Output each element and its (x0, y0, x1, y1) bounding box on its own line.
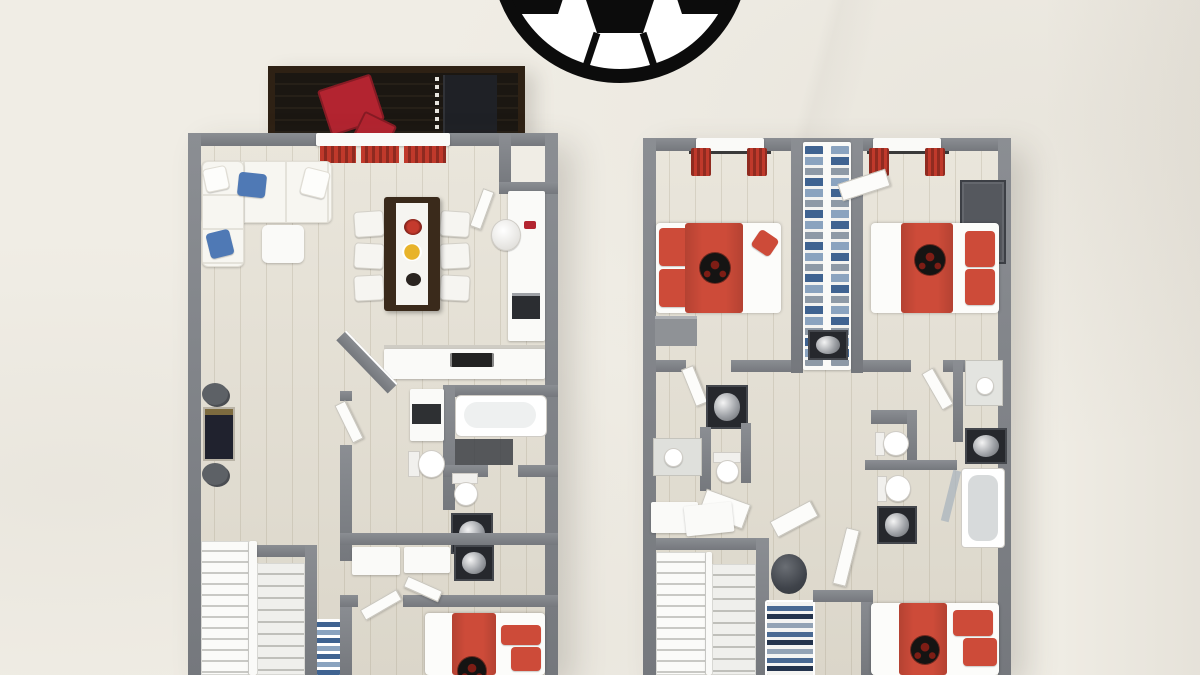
oven (512, 293, 540, 319)
washing-machine-2 (454, 545, 494, 581)
dark-plate (406, 273, 421, 286)
bath-door-leaf (681, 365, 708, 407)
bed-first-floor (425, 613, 545, 675)
kitchen-red-item (524, 221, 536, 229)
shower-interior (968, 475, 998, 541)
closet-shelves-clothes (317, 619, 340, 675)
floor-plan-scene (0, 0, 1200, 675)
right-bath-wall-h (865, 460, 957, 470)
sink-bowl (976, 377, 994, 395)
shower-enclosure (961, 468, 1005, 548)
toiletA-bowl (883, 431, 909, 456)
bathroom-door-leaf (334, 400, 363, 443)
bed-top-right (871, 223, 999, 313)
sink-bowl (664, 448, 683, 467)
dining-chair (353, 274, 384, 302)
red-curtain (691, 148, 711, 176)
stair-flight-left (656, 552, 706, 675)
bed-red-pillow-2 (511, 647, 541, 671)
stair-stringer (249, 541, 257, 675)
cabinet-2 (404, 547, 450, 573)
stair-flight-right (257, 563, 305, 675)
toiletB-bowl (885, 475, 911, 502)
dining-chair (353, 210, 385, 238)
dining-table (384, 197, 440, 311)
lower-wall-h (340, 533, 558, 545)
kitchen-sink-bowl (491, 219, 521, 251)
right-bath-wall-v (953, 360, 963, 442)
red-door-mat (404, 146, 446, 163)
balcony-door-frame (316, 133, 450, 146)
nightstand-gray (655, 316, 697, 346)
stair-flight-right (712, 564, 756, 675)
toilet-bowl (716, 460, 739, 483)
floor-plan-second (643, 138, 1011, 675)
sink-counter-right (965, 360, 1003, 406)
stair-wall-right (305, 545, 317, 675)
dining-chair (439, 274, 470, 302)
bean-bag (771, 554, 807, 594)
bath-wall-bottom-b (518, 465, 558, 477)
left-bath-wall-v2 (741, 423, 751, 483)
entry-notch-wall-v (499, 133, 511, 188)
arcade-game-table (203, 407, 235, 461)
closet-wall (340, 603, 352, 675)
bath-door-leaf-2 (921, 368, 953, 411)
bottom-bedroom-wall-h (813, 590, 873, 602)
bed-pillow-red-2 (965, 269, 995, 305)
landing-door-leaf-2 (832, 527, 860, 587)
stair-wall-top (656, 538, 761, 550)
washer-dryer-tower (410, 389, 444, 441)
toilet-bowl (418, 450, 445, 478)
soccer-ball-motif (915, 245, 945, 275)
balcony-storage-unit (443, 75, 497, 135)
hall-wall-stub (340, 391, 352, 401)
game-stool (202, 383, 228, 405)
sofa-pillow-white (202, 165, 230, 193)
soccer-ball-motif (911, 636, 939, 664)
entry-door-leaf (470, 188, 495, 230)
bed-pillow-red-2 (963, 638, 997, 666)
yellow-plate (402, 243, 422, 261)
red-door-mat (361, 146, 399, 163)
red-curtain (925, 148, 945, 176)
closet-lower-washer (808, 330, 848, 360)
bed-red-pillow (501, 625, 541, 645)
ottoman (262, 225, 304, 263)
wall-left (643, 138, 656, 675)
dryer-door (412, 404, 441, 424)
balcony-door-track (435, 77, 439, 133)
bedroom-wall-a (340, 595, 358, 607)
washerA-right-bath (965, 428, 1007, 464)
washerB-right-bath (877, 506, 917, 544)
sink-counter (653, 438, 702, 476)
soccer-ball-graphic (488, 0, 752, 86)
shower-dark-floor (455, 439, 513, 465)
soccer-ball-motif (700, 253, 730, 283)
mid-wall-c (863, 360, 911, 372)
white-table (684, 502, 735, 537)
closet-wall-left (791, 138, 803, 373)
shoe-shelf (767, 602, 813, 675)
wall-left (188, 133, 201, 675)
red-flowers (404, 219, 422, 235)
floor-plan-first (188, 133, 558, 675)
red-curtain (747, 148, 767, 176)
shower-glass (941, 470, 961, 522)
bed-pillow-red (953, 610, 993, 636)
dining-chair (439, 242, 470, 270)
background-texture (0, 0, 1200, 675)
game-stool-2 (202, 463, 228, 485)
closet-wall-right (851, 138, 863, 373)
red-accent-cushion (750, 229, 779, 258)
dining-chair (439, 210, 471, 238)
bed-pillow-red (965, 231, 995, 267)
bathtub-interior (464, 402, 536, 428)
bedroom-door-leaf (360, 589, 402, 620)
dining-chair (353, 242, 384, 270)
cabinet (352, 547, 400, 575)
stair-flight-left (201, 541, 249, 675)
bed-top-left (656, 223, 781, 313)
toilet2-bowl (454, 482, 478, 506)
right-bath-wall-l2 (907, 410, 917, 464)
bathtub (455, 395, 547, 437)
landing-door-leaf (769, 500, 818, 537)
sofa-pillow-blue (237, 172, 267, 199)
soccer-ball-svg (488, 0, 752, 86)
cooktop (450, 353, 494, 367)
bed-bottom (871, 603, 999, 675)
mid-wall-b (731, 360, 791, 372)
